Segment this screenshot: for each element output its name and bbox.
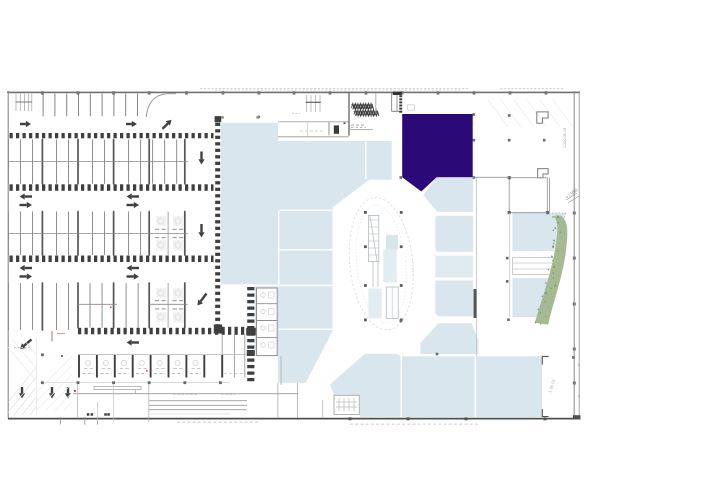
svg-text:1:200 05 10: 1:200 05 10 — [563, 128, 567, 148]
